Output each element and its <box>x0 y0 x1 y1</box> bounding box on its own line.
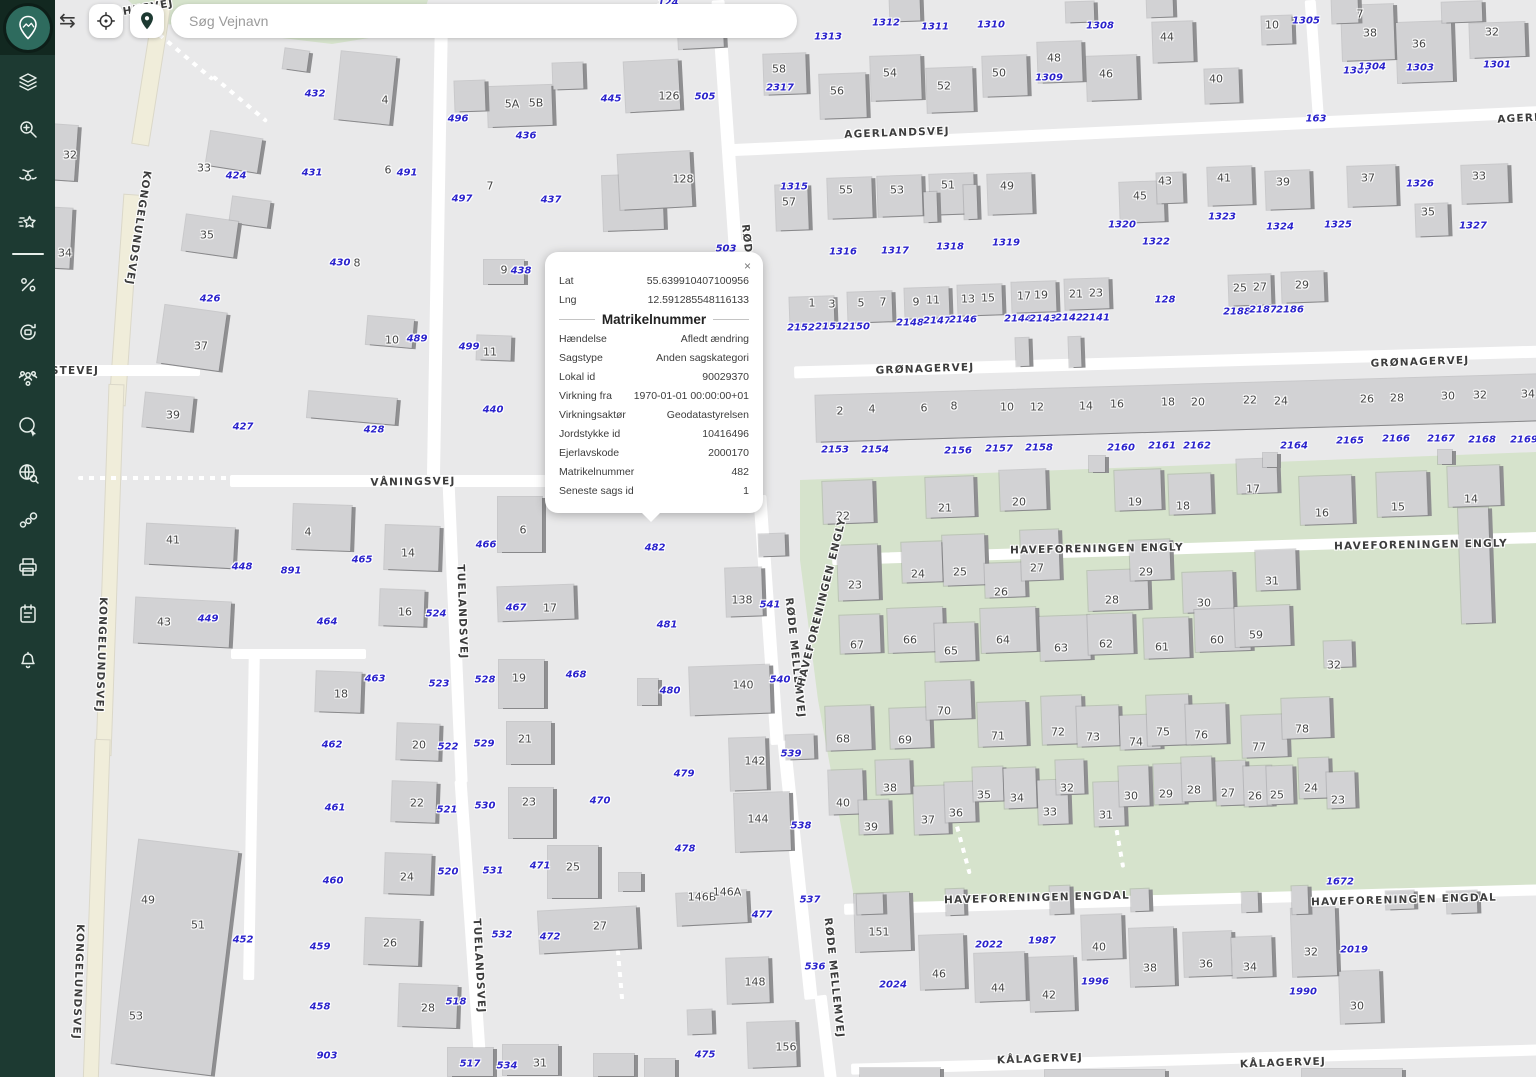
building <box>822 480 873 524</box>
building <box>1299 475 1353 525</box>
popup-tail <box>641 512 661 522</box>
building <box>638 679 658 705</box>
building <box>1129 539 1170 580</box>
popup-row: VirkningsaktørGeodatastyrelsen <box>559 406 749 425</box>
building <box>379 589 424 627</box>
star-lines-icon <box>16 211 40 235</box>
building <box>553 62 584 89</box>
building <box>283 48 310 71</box>
building <box>334 51 396 124</box>
building <box>366 316 414 348</box>
building <box>1326 772 1355 809</box>
sidebar-item-history[interactable] <box>8 406 48 446</box>
map-pin-icon <box>136 10 158 32</box>
building <box>145 524 235 569</box>
building <box>847 291 892 323</box>
building <box>398 984 457 1028</box>
building <box>1438 450 1452 464</box>
sidebar-item-zoom[interactable] <box>8 109 48 149</box>
popup-row: Virkning fra1970-01-01 00:00:00+01 <box>559 387 749 406</box>
popup-row-label: Lat <box>559 272 574 291</box>
building <box>999 469 1046 511</box>
building <box>503 1045 558 1075</box>
popup-row-value: 90029370 <box>702 368 749 387</box>
building <box>1118 765 1149 806</box>
sidebar-item-linked-data[interactable] <box>8 500 48 540</box>
users-icon <box>16 367 40 391</box>
building <box>763 53 806 94</box>
popup-row: Seneste sags id1 <box>559 482 749 501</box>
building <box>901 541 942 582</box>
building <box>934 622 975 661</box>
building <box>619 873 641 891</box>
popup-row-value: Anden sagskategori <box>656 349 749 368</box>
building <box>1153 763 1184 804</box>
building <box>1458 507 1492 623</box>
building <box>499 660 544 708</box>
building <box>1228 274 1271 305</box>
building <box>1003 767 1036 808</box>
building <box>926 67 974 113</box>
building <box>1168 473 1211 514</box>
building <box>1207 166 1252 206</box>
building <box>825 705 872 751</box>
building <box>594 1054 634 1076</box>
building <box>923 192 937 222</box>
building <box>1015 338 1029 366</box>
measure-points-icon <box>16 273 40 297</box>
building <box>1442 1 1483 22</box>
building <box>1050 886 1071 915</box>
building <box>786 735 815 760</box>
building <box>1086 55 1138 101</box>
building <box>1234 605 1290 647</box>
app-window: × Lat55.639910407100956Lng12.59128554811… <box>0 0 1536 1077</box>
building <box>957 284 1002 316</box>
building <box>391 781 436 823</box>
building <box>454 80 485 111</box>
building <box>538 906 638 953</box>
marker-button[interactable] <box>130 4 164 38</box>
building <box>877 175 922 217</box>
dotted-path <box>78 476 228 480</box>
popup-row-label: Hændelse <box>559 330 607 349</box>
building <box>1447 465 1500 507</box>
popup-row: Lat55.639910407100956 <box>559 272 749 291</box>
building <box>919 934 965 990</box>
building <box>946 889 965 916</box>
logo-circle <box>6 6 50 50</box>
building <box>1324 641 1353 668</box>
building <box>1181 756 1213 801</box>
building <box>497 585 574 622</box>
swap-arrows-icon[interactable]: ⇆ <box>59 8 76 32</box>
building <box>507 722 551 764</box>
building <box>925 680 971 720</box>
building <box>1339 970 1381 1023</box>
zoom-in-icon <box>16 117 40 141</box>
close-icon[interactable]: × <box>744 260 751 272</box>
building <box>509 788 553 838</box>
popup-row-value: 2000170 <box>708 444 749 463</box>
building <box>1332 0 1359 23</box>
sidebar <box>0 0 55 1077</box>
building <box>364 918 420 966</box>
popup-row-label: Virkningsaktør <box>559 406 626 425</box>
building <box>315 671 361 713</box>
popup-row: Lokal id90029370 <box>559 368 749 387</box>
building <box>972 766 1003 801</box>
building <box>1415 203 1448 236</box>
sidebar-item-globe-search[interactable] <box>8 453 48 493</box>
bell-icon <box>16 649 40 673</box>
sidebar-item-drone[interactable] <box>8 156 48 196</box>
popup-row: Ejerlavskode2000170 <box>559 444 749 463</box>
building <box>980 607 1037 653</box>
popup-row: SagstypeAnden sagskategori <box>559 349 749 368</box>
popup-row: HændelseAfledt ændring <box>559 330 749 349</box>
sidebar-divider <box>12 253 44 255</box>
building <box>1461 164 1508 204</box>
popup-row-value: 55.639910407100956 <box>647 272 749 291</box>
building <box>1262 15 1293 44</box>
building <box>396 723 439 760</box>
layers-icon <box>16 70 40 94</box>
building <box>1039 615 1091 661</box>
building <box>819 73 867 119</box>
building <box>1045 1070 1165 1077</box>
building <box>1020 529 1060 580</box>
building <box>875 759 910 794</box>
building <box>1066 2 1095 23</box>
building <box>1263 453 1277 467</box>
sidebar-item-notes[interactable] <box>8 594 48 634</box>
building <box>1291 907 1337 976</box>
building <box>487 85 552 127</box>
building <box>1386 891 1415 910</box>
globe-search-icon <box>16 461 40 485</box>
popup-row: Lng12.591285548116133 <box>559 291 749 310</box>
popup-title-text: Matrikelnummer <box>602 312 706 327</box>
road <box>231 649 366 659</box>
popup-row-value: Afledt ændring <box>681 330 749 349</box>
building <box>942 534 986 585</box>
popup-row-label: Ejerlavskode <box>559 444 619 463</box>
popup-row-value: 482 <box>731 463 749 482</box>
building <box>977 701 1027 747</box>
popup-row-label: Virkning fra <box>559 387 612 406</box>
building <box>624 60 681 113</box>
building <box>1114 469 1161 511</box>
building <box>759 534 786 557</box>
building <box>837 544 879 600</box>
building <box>870 55 922 101</box>
building <box>384 525 440 571</box>
popup-row-label: Seneste sags id <box>559 482 634 501</box>
popup-row-value: 10416496 <box>702 425 749 444</box>
building <box>645 1059 675 1077</box>
camera-360-icon <box>16 320 40 344</box>
search-input[interactable] <box>171 4 797 38</box>
building <box>857 894 884 915</box>
building <box>292 504 352 551</box>
clipboard-icon <box>16 602 40 626</box>
building <box>775 184 809 230</box>
building <box>384 853 431 895</box>
building <box>974 952 1026 1002</box>
building <box>448 1048 493 1076</box>
popup-row-value: 12.591285548116133 <box>648 291 749 310</box>
building <box>1131 889 1150 912</box>
building <box>1298 757 1329 798</box>
sidebar-item-favorites[interactable] <box>8 203 48 243</box>
popup-coordinates: Lat55.639910407100956Lng12.5912855481161… <box>559 272 749 310</box>
building <box>618 151 693 210</box>
building <box>1242 892 1259 913</box>
crosshair-icon <box>95 10 117 32</box>
building <box>1146 694 1190 745</box>
drone-icon <box>16 164 40 188</box>
building <box>142 393 193 432</box>
building <box>729 737 767 790</box>
building <box>1469 22 1525 58</box>
locate-button[interactable] <box>89 4 123 38</box>
building <box>889 707 930 748</box>
building <box>1068 337 1081 367</box>
printer-icon <box>16 555 40 579</box>
building <box>1215 760 1247 805</box>
building <box>484 260 524 284</box>
building <box>1302 1069 1402 1077</box>
building <box>1089 456 1105 472</box>
building <box>725 567 763 616</box>
building <box>498 497 542 552</box>
location-pin-logo-icon <box>13 13 43 43</box>
popup-row-label: Sagstype <box>559 349 603 368</box>
building <box>982 55 1027 97</box>
sidebar-item-notifications[interactable] <box>8 641 48 681</box>
building <box>182 215 239 258</box>
building <box>747 1021 797 1068</box>
building <box>1147 0 1174 17</box>
popup-attributes: HændelseAfledt ændringSagstypeAnden sags… <box>559 330 749 501</box>
sidebar-item-print[interactable] <box>8 547 48 587</box>
building <box>1204 68 1239 103</box>
popup-title: Matrikelnummer <box>559 312 749 327</box>
building <box>858 799 889 834</box>
building <box>925 476 974 518</box>
building <box>839 614 880 653</box>
map-canvas[interactable]: × Lat55.639910407100956Lng12.59128554811… <box>0 0 1536 1077</box>
sidebar-item-users[interactable] <box>8 359 48 399</box>
sidebar-item-360-view[interactable] <box>8 312 48 352</box>
building <box>1064 278 1109 310</box>
popup-row-label: Lng <box>559 291 577 310</box>
building <box>1143 617 1189 659</box>
building <box>1255 549 1296 590</box>
building <box>1011 281 1056 313</box>
building <box>676 890 748 926</box>
building <box>890 0 921 22</box>
popup-row-value: Geodatastyrelsen <box>667 406 749 425</box>
building <box>734 792 791 852</box>
building <box>726 957 770 1003</box>
building <box>1081 914 1123 959</box>
building <box>477 335 512 360</box>
building <box>860 1068 940 1077</box>
building <box>1241 714 1287 758</box>
building <box>1376 471 1428 517</box>
building <box>1231 936 1272 977</box>
building <box>1292 886 1309 915</box>
popup-row-label: Matrikelnummer <box>559 463 634 482</box>
popup-row-label: Lokal id <box>559 368 595 387</box>
building <box>987 173 1032 215</box>
popup-row-value: 1970-01-01 00:00:00+01 <box>634 387 749 406</box>
building <box>1087 613 1133 655</box>
building <box>1347 165 1396 207</box>
popup-row-value: 1 <box>743 482 749 501</box>
building <box>913 785 949 834</box>
building <box>1185 703 1226 744</box>
time-cursor-icon <box>16 414 40 438</box>
building <box>1037 41 1082 83</box>
building <box>1281 697 1330 739</box>
building <box>689 665 771 716</box>
building <box>1129 927 1175 987</box>
popup-row-label: Jordstykke id <box>559 425 620 444</box>
linked-circles-icon <box>16 508 40 532</box>
parcel-info-popup: × Lat55.639910407100956Lng12.59128554811… <box>545 252 763 513</box>
building <box>688 1010 713 1035</box>
green-area <box>800 452 1536 903</box>
building <box>1447 890 1478 913</box>
sidebar-item-measure[interactable] <box>8 265 48 305</box>
sidebar-item-layers[interactable] <box>8 62 48 102</box>
building <box>133 597 230 647</box>
building <box>944 781 975 822</box>
popup-row: Matrikelnummer482 <box>559 463 749 482</box>
building <box>1266 766 1293 805</box>
building <box>1156 173 1183 204</box>
building <box>984 562 1025 597</box>
building <box>1029 956 1075 1012</box>
building <box>157 305 226 371</box>
building <box>1076 705 1119 746</box>
building <box>1265 170 1310 210</box>
building <box>789 296 834 328</box>
building <box>1055 760 1084 795</box>
building <box>904 287 949 319</box>
building <box>1182 571 1233 613</box>
building <box>1281 271 1324 302</box>
building <box>1395 21 1452 83</box>
building <box>548 846 598 898</box>
building <box>1183 931 1233 977</box>
building <box>1152 21 1193 62</box>
popup-row: Jordstykke id10416496 <box>559 425 749 444</box>
app-logo[interactable] <box>0 0 55 55</box>
building <box>827 177 872 219</box>
building <box>963 185 977 219</box>
